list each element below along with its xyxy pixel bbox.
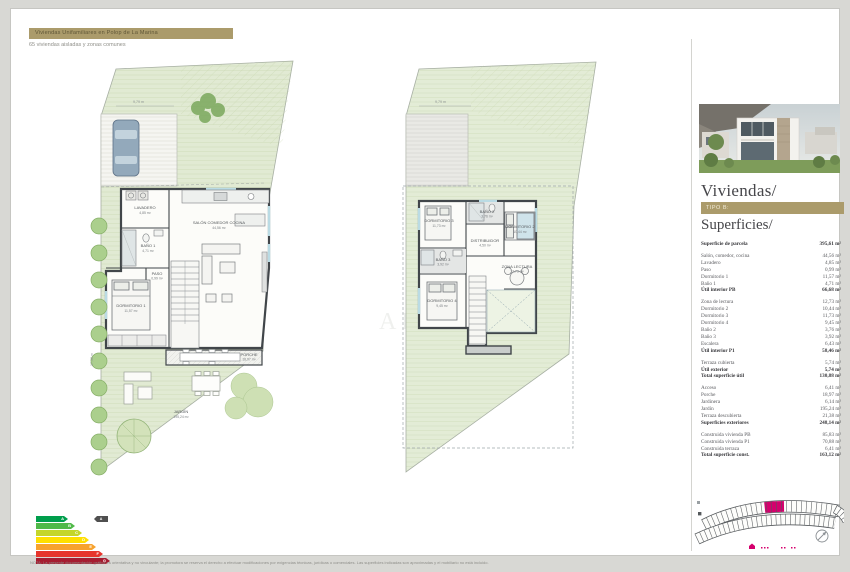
svg-text:44,56 m²: 44,56 m² (212, 226, 226, 230)
void-double-height (487, 290, 535, 332)
table-row: Zona de lectura 12,73 m² (701, 299, 841, 306)
table-row: Dormitorio 1 11,57 m² (701, 274, 841, 281)
table-row: Porche 18,97 m² (701, 392, 841, 399)
svg-text:9,45 m²: 9,45 m² (436, 304, 448, 308)
table-row: Terraza descubierta 21,38 m² (701, 413, 841, 420)
svg-text:4,50 m²: 4,50 m² (479, 244, 491, 248)
north-arrow-icon (816, 530, 828, 542)
table-row: Construida vivienda PB 85,83 m² (701, 432, 841, 439)
dimension-top: 9,79 m (435, 100, 446, 104)
stairs (469, 276, 486, 344)
energy-arrow: E (36, 544, 96, 550)
garden-dining-set (192, 372, 220, 396)
bed-icon (425, 206, 451, 240)
svg-text:3,92 m²: 3,92 m² (437, 263, 449, 267)
energy-class-row: E (36, 544, 146, 550)
energy-arrow: A (36, 516, 68, 522)
page: Viviendas Unifamiliares en Polop de La M… (0, 0, 850, 572)
terrace (466, 346, 511, 354)
energy-arrow: B (36, 523, 75, 529)
table-row: Acceso 6,41 m² (701, 385, 841, 392)
car-icon (113, 120, 139, 176)
plan-sheet: Viviendas Unifamiliares en Polop de La M… (10, 8, 840, 556)
room-label: PORCHE (240, 352, 257, 357)
table-row: Construida terraza 6,41 m² (701, 446, 841, 453)
room-label: BAÑO 3 (436, 257, 451, 262)
table-row: Total superficie const. 163,12 m² (701, 452, 841, 459)
table-row: Útil exterior 5,74 m² (701, 367, 841, 374)
room-label: LAVADERO (134, 205, 155, 210)
table-row: Dormitorio 2 10,44 m² (701, 306, 841, 313)
svg-text:18,97 m²: 18,97 m² (242, 358, 256, 362)
energy-arrow: F (36, 551, 103, 557)
round-tree (117, 419, 151, 453)
tv-unit (262, 252, 267, 292)
energy-class-row: D (36, 537, 146, 543)
floor-plan-first: 9,79 m DORMITORIO 3 11,73 m² BAÑO 2 3,76… (391, 56, 606, 486)
svg-text:12,73 m²: 12,73 m² (510, 270, 524, 274)
table-row: Dormitorio 4 9,45 m² (701, 320, 841, 327)
driveway (406, 114, 468, 186)
panel-title: Viviendas/ (701, 181, 777, 201)
table-row: Paso 0,99 m² (701, 267, 841, 274)
table-row: Lavadero 4,85 m² (701, 260, 841, 267)
site-key-plan (689, 491, 844, 553)
room-label: DISTRIBUIDOR (471, 238, 500, 243)
energy-arrow: D (36, 537, 89, 543)
room-label: DORMITORIO 3 (424, 218, 454, 223)
dimension-left: 17,38 m (90, 353, 94, 366)
energy-class-row: C (36, 530, 146, 536)
table-row: Escalera 6,43 m² (701, 341, 841, 348)
table-row: Baño 3 3,92 m² (701, 334, 841, 341)
svg-text:195,24 m²: 195,24 m² (173, 415, 189, 419)
table-row: Jardín 195,24 m² (701, 406, 841, 413)
legal-disclaimer: NOTA: La presente documentación gráfica … (30, 560, 810, 565)
table-row: Total superficie útil 130,88 m² (701, 373, 841, 380)
legend-marks (749, 544, 796, 550)
room-label: DORMITORIO 4 (427, 298, 457, 303)
svg-text:0,99 m²: 0,99 m² (151, 277, 163, 281)
room-label: SALÓN COMEDOR COCINA (193, 220, 246, 225)
room-label: BAÑO 1 (141, 243, 156, 248)
garden-lounge-set (124, 372, 152, 404)
table-row: Baño 2 3,76 m² (701, 327, 841, 334)
room-label: BAÑO 2 (480, 209, 495, 214)
room-label: DORMITORIO 1 (116, 303, 146, 308)
svg-text:11,73 m²: 11,73 m² (432, 224, 446, 228)
energy-arrow: C (36, 530, 82, 536)
room-label: JARDÍN (174, 409, 189, 414)
villa-render-photo (699, 104, 840, 173)
svg-text:11,57 m²: 11,57 m² (124, 309, 138, 313)
project-title-badge: Viviendas Unifamiliares en Polop de La M… (29, 28, 233, 39)
table-row: Superficies exteriores 248,14 m² (701, 420, 841, 427)
energy-rating-label: A B C D (36, 516, 146, 565)
palm-cluster (225, 373, 273, 419)
dimension-top: 9,79 m (133, 100, 144, 104)
svg-text:4,71 m²: 4,71 m² (142, 249, 154, 253)
energy-indicator: A (94, 516, 108, 522)
superficies-title: Superficies/ (701, 217, 773, 234)
panel-divider (691, 39, 692, 551)
energy-class-row: A (36, 516, 146, 522)
floor-plan-ground: 9,79 m 17,38 m LAVADERO 4,85 m² BAÑO 1 4… (86, 56, 301, 486)
table-row: Terraza cubierta 5,74 m² (701, 360, 841, 367)
room-label: PASO (152, 271, 163, 276)
room-label: DORMITORIO 2 (505, 224, 535, 229)
surfaces-table: Superficie de parcela 395,61 m² Salón, c… (701, 241, 841, 459)
energy-class-row: F (36, 551, 146, 557)
energy-class-row: B (36, 523, 146, 529)
type-badge: TIPO B: (701, 202, 844, 214)
table-row: Útil interior PB 66,68 m² (701, 287, 841, 294)
table-row: Jardinera 6,14 m² (701, 399, 841, 406)
svg-text:10,44 m²: 10,44 m² (513, 230, 527, 234)
project-subtitle: 65 viviendas aisladas y zonas comunes (29, 42, 126, 48)
stairs (171, 261, 199, 348)
table-row: Superficie de parcela 395,61 m² (701, 241, 841, 248)
table-row: Construida vivienda P1 70,88 m² (701, 439, 841, 446)
svg-text:4,85 m²: 4,85 m² (139, 211, 151, 215)
table-row: Útil interior P1 58,46 m² (701, 348, 841, 355)
svg-text:3,76 m²: 3,76 m² (481, 215, 493, 219)
room-label: ZONA LECTURA (502, 264, 533, 269)
table-row: Dormitorio 3 11,73 m² (701, 313, 841, 320)
table-row: Salón, comedor, cocina 44,56 m² (701, 253, 841, 260)
